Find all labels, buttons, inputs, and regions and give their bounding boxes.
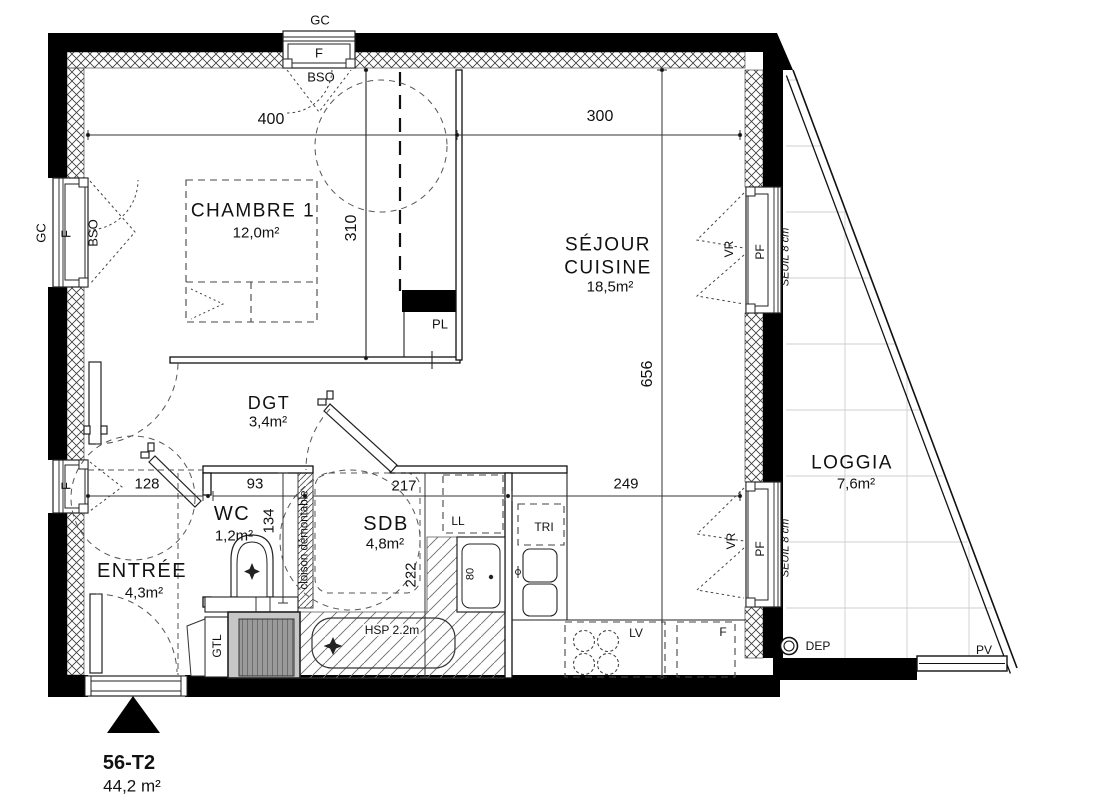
window-left1-f-label: F — [60, 230, 73, 238]
room-area-sejour: 18,5m² — [587, 280, 634, 295]
dim-128: 128 — [134, 477, 159, 492]
dim-249: 249 — [613, 477, 638, 492]
room-area-dgt: 3,4m² — [249, 415, 287, 430]
plan-geometry — [0, 0, 1111, 800]
window-right2-pf-label: PF — [754, 541, 766, 556]
room-label-chambre: CHAMBRE 1 — [191, 202, 315, 221]
window-right1-pf-label: PF — [754, 244, 766, 259]
window-top-gc-label: GC — [310, 14, 330, 27]
gtl-label: GTL — [211, 634, 223, 657]
room-label-sejour: SÉJOUR — [565, 236, 651, 255]
room-label-entree: ENTRÉE — [97, 561, 187, 581]
room-label-cuisine: CUISINE — [564, 259, 652, 278]
dim-656: 656 — [640, 361, 656, 388]
window-left2-f-label: F — [60, 482, 73, 490]
dim-93: 93 — [247, 477, 264, 492]
room-label-wc: WC — [214, 504, 250, 524]
window-left1-gc-label: GC — [35, 223, 48, 243]
window-right2-vr-label: VR — [725, 533, 737, 550]
window-right2-seuil-label: SEUIL 8 cm — [781, 519, 792, 578]
cloison-demontable-label: cloison démontable — [299, 490, 311, 589]
window-left1-bso-label: BSO — [87, 219, 100, 246]
room-label-sdb: SDB — [361, 514, 411, 534]
room-label-dgt: DGT — [248, 394, 291, 412]
dim-310: 310 — [344, 215, 360, 242]
unit-area: 44,2 m² — [103, 778, 161, 795]
dim-400: 400 — [258, 112, 285, 128]
dim-300: 300 — [587, 109, 614, 125]
pv-label: PV — [976, 644, 992, 656]
floor-plan: CHAMBRE 1 12,0m² SÉJOUR CUISINE 18,5m² D… — [0, 0, 1111, 800]
window-right1-vr-label: VR — [723, 241, 735, 258]
dep-label: DEP — [806, 640, 831, 652]
fridge-f-label: F — [719, 626, 726, 638]
ceiling-height-label: HSP 2.2m — [363, 624, 421, 636]
dim-217: 217 — [391, 479, 416, 494]
dim-134: 134 — [262, 508, 277, 533]
dim-80: 80 — [466, 568, 477, 580]
washer-ll-label: LL — [451, 515, 464, 527]
window-top-bso-label: BSO — [307, 71, 334, 84]
dim-222: 222 — [404, 562, 419, 587]
room-area-chambre: 12,0m² — [233, 226, 280, 241]
room-area-sdb: 4,8m² — [364, 537, 406, 552]
room-area-wc: 1,2m² — [215, 529, 253, 544]
dishwasher-lv-label: LV — [629, 627, 643, 639]
window-right1-seuil-label: SEUIL 8 cm — [781, 228, 792, 287]
room-label-loggia: LOGGIA — [811, 454, 893, 473]
room-area-entree: 4,3m² — [125, 586, 163, 601]
unit-title: 56-T2 — [103, 753, 155, 773]
window-top-f-label: F — [315, 47, 323, 60]
room-area-loggia: 7,6m² — [837, 477, 875, 492]
tri-label: TRI — [532, 521, 555, 533]
closet-pl-label: PL — [432, 318, 448, 331]
